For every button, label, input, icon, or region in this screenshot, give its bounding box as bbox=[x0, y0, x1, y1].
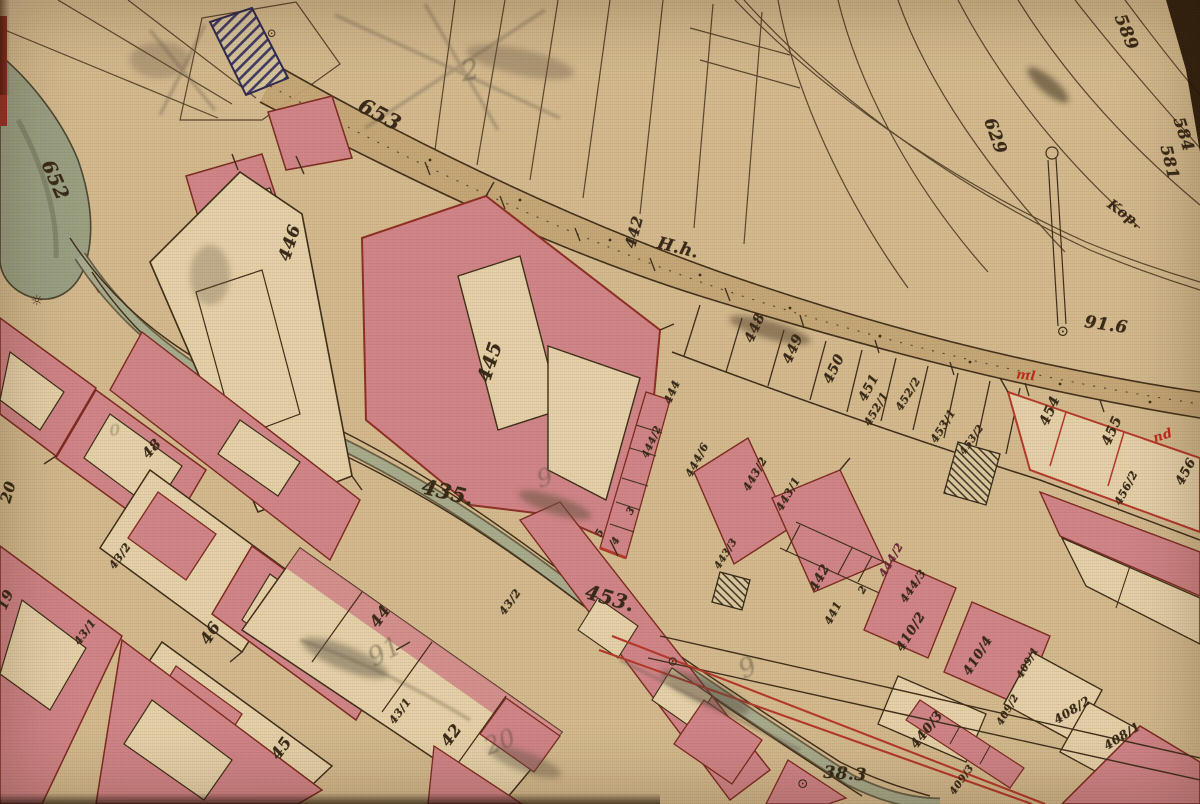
parcel-label-409-1: 409/1 bbox=[1015, 646, 1042, 681]
parcel-label-48: 48 bbox=[139, 436, 165, 462]
parcel-label-409-3: 409/3 bbox=[948, 763, 977, 797]
parcel-label-443-3: 443/3 bbox=[712, 537, 739, 572]
parcel-label-19: 19 bbox=[0, 587, 17, 612]
parcel-label-453-1: 453/1 bbox=[928, 407, 959, 445]
parcel-label-20: 20 bbox=[0, 479, 20, 505]
cell-label-2: 2 bbox=[856, 584, 869, 596]
parcel-label-442-road: 442 bbox=[621, 214, 647, 250]
cell-label-4: 4 bbox=[609, 535, 622, 547]
parcel-label-445: 445 bbox=[473, 339, 507, 385]
map-canvas[interactable]: 652 653 435. 453. 589 629 584 581 Kop. 4… bbox=[0, 0, 1200, 804]
parcel-label-446: 446 bbox=[275, 222, 305, 263]
parcel-label-408-1: 408/1 bbox=[1101, 719, 1143, 752]
parcel-label-44: 44 bbox=[365, 601, 394, 631]
parcel-label-456: 456 bbox=[1173, 456, 1200, 488]
parcel-label-442: 442 bbox=[807, 562, 834, 594]
parcel-label-449: 449 bbox=[779, 332, 806, 367]
parcel-label-43-2a: 43/2 bbox=[106, 540, 134, 571]
parcel-label-452-2: 452/2 bbox=[893, 375, 924, 413]
cell-label-3: 3 bbox=[624, 505, 637, 517]
water-label-652: 652 bbox=[37, 157, 74, 204]
parcel-label-444-3: 444/3 bbox=[897, 567, 929, 605]
parcel-label-443-2: 443/2 bbox=[740, 455, 770, 494]
spot-height-91-6: 91.6 bbox=[1083, 312, 1129, 338]
pencil-mark-91: 91 bbox=[363, 631, 407, 673]
parcel-label-408-2: 408/2 bbox=[1051, 693, 1093, 726]
parcel-label-450: 450 bbox=[820, 352, 848, 387]
parcel-label-42: 42 bbox=[436, 720, 465, 750]
parcel-label-455: 455 bbox=[1098, 414, 1125, 449]
parcel-label-589: 589 bbox=[1110, 11, 1142, 53]
spot-height-38-3: 38.3 bbox=[823, 763, 868, 786]
red-annotation-ml: ml bbox=[1015, 368, 1036, 385]
parcel-label-629: 629 bbox=[979, 115, 1010, 157]
parcel-label-448: 448 bbox=[741, 311, 768, 346]
abbrev-kop: Kop. bbox=[1104, 196, 1144, 231]
parcel-label-45: 45 bbox=[266, 733, 295, 763]
parcel-label-444: 444 bbox=[661, 378, 683, 406]
parcel-label-456-2: 456/2 bbox=[1112, 469, 1141, 508]
pencil-mark-0: 0 bbox=[109, 420, 121, 440]
parcel-label-43-1a: 43/1 bbox=[71, 616, 99, 647]
red-annotation-nd: nd bbox=[1151, 426, 1174, 446]
parcel-label-441: 441 bbox=[822, 599, 845, 627]
parcel-label-444-6: 444/6 bbox=[683, 441, 712, 480]
survey-circle-icon: ⊙ bbox=[267, 26, 278, 40]
pencil-mark-2: 2 bbox=[458, 52, 482, 88]
parcel-label-444-2-red: 444/2 bbox=[876, 541, 906, 580]
parcel-label-410-4: 410/4 bbox=[960, 634, 996, 679]
parcel-label-440-3: 440/3 bbox=[908, 708, 947, 751]
pencil-mark-20: 20 bbox=[480, 723, 520, 761]
parcel-label-454: 454 bbox=[1036, 394, 1063, 429]
parcel-label-444-2: 444/2 bbox=[640, 424, 664, 460]
parcel-label-410-2: 410/2 bbox=[893, 610, 929, 655]
parcel-label-443-1: 443/1 bbox=[773, 475, 803, 514]
street-label-653: 653 bbox=[354, 92, 406, 135]
street-label-453: 453. bbox=[582, 579, 637, 616]
street-label-435: 435. bbox=[419, 473, 477, 510]
survey-circle-icon: ⊙ bbox=[667, 655, 678, 670]
label-layer: 652 653 435. 453. 589 629 584 581 Kop. 4… bbox=[0, 0, 1200, 804]
abbrev-hh: H.h. bbox=[655, 233, 701, 263]
parcel-label-409-2: 409/2 bbox=[995, 693, 1022, 728]
parcel-label-46: 46 bbox=[196, 618, 224, 648]
sun-wheel-icon: ☼ bbox=[30, 293, 43, 309]
pencil-mark-9a: 9 bbox=[534, 462, 556, 493]
parcel-label-43-1b: 43/1 bbox=[386, 695, 414, 726]
parcel-label-43-2b: 43/2 bbox=[496, 586, 524, 617]
parcel-label-453-2: 453/2 bbox=[958, 423, 987, 457]
cell-label-5: 5 bbox=[593, 527, 606, 539]
survey-circle-icon: ⊙ bbox=[797, 776, 809, 792]
pencil-mark-9b: 9 bbox=[734, 651, 762, 685]
survey-circle-icon: ⊙ bbox=[1056, 322, 1069, 340]
